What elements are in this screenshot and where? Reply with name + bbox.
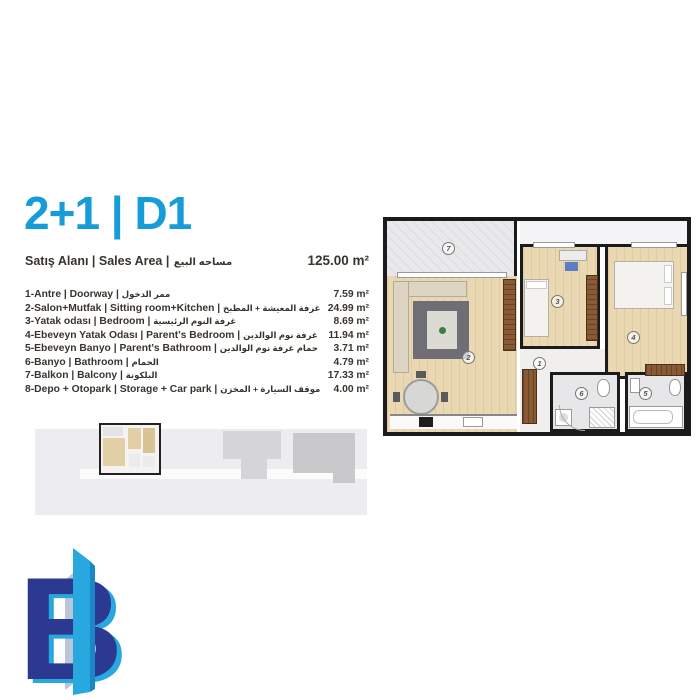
building-footprint [223, 431, 281, 459]
room-label-latin: 4-Ebeveyn Yatak Odası | Parent's Bedroom… [25, 330, 240, 341]
sales-area-row: Satış Alanı | Sales Area | مساحه البيع 1… [25, 252, 369, 270]
room-label-latin: 8-Depo + Otopark | Storage + Car park | [25, 384, 217, 395]
room-label-arabic: موقف السيارة + المخزن [220, 384, 320, 394]
building-footprint [293, 433, 355, 473]
unit-title: 2+1 | D1 [24, 190, 191, 236]
room-area: 4.79 m² [334, 357, 370, 368]
logo-tower-edge [90, 561, 95, 692]
room-row-salon: 2-Salon+Mutfak | Sitting room+Kitchen | … [25, 303, 369, 317]
room-label-latin: 7-Balkon | Balcony | [25, 370, 123, 381]
sales-area-label: Satış Alanı | Sales Area | [25, 254, 169, 268]
room-label-latin: 5-Ebeveyn Banyo | Parent's Bathroom | [25, 343, 217, 354]
room-area: 7.59 m² [334, 289, 370, 300]
room-label-latin: 3-Yatak odası | Bedroom | [25, 316, 150, 327]
mini-bathroom [129, 454, 140, 467]
mini-bathroom [143, 456, 155, 467]
room-label-arabic: غرفة النوم الرئيسية [153, 316, 236, 326]
room-label-arabic: ممر الدخول [122, 289, 170, 299]
room-row-balkon: 7-Balkon | Balcony | البلكونة 17.33 m² [25, 370, 369, 384]
mini-balcony [103, 427, 123, 436]
room-label: 5-Ebeveyn Banyo | Parent's Bathroom | حم… [25, 343, 318, 354]
mini-bedroom [128, 428, 141, 449]
floor-plan-outer-wall [383, 217, 691, 436]
room-label: 2-Salon+Mutfak | Sitting room+Kitchen | … [25, 303, 320, 314]
sales-area-label-group: Satış Alanı | Sales Area | مساحه البيع [25, 252, 232, 270]
room-label-latin: 6-Banyo | Bathroom | [25, 357, 129, 368]
room-area: 3.71 m² [334, 343, 370, 354]
room-row-yatak: 3-Yatak odası | Bedroom | غرفة النوم الر… [25, 316, 369, 330]
room-area: 8.69 m² [334, 316, 370, 327]
room-list: 1-Antre | Doorway | ممر الدخول 7.59 m² 2… [25, 289, 369, 397]
site-plan-unit-marker [99, 423, 161, 475]
room-label-latin: 1-Antre | Doorway | [25, 289, 119, 300]
room-label-arabic: حمام غرفة نوم الوالدين [220, 343, 318, 353]
mini-parent-bedroom [143, 428, 155, 453]
room-label: 7-Balkon | Balcony | البلكونة [25, 370, 157, 381]
sales-area-value: 125.00 m² [307, 253, 369, 268]
room-row-ebeveyn-yatak: 4-Ebeveyn Yatak Odası | Parent's Bedroom… [25, 330, 369, 344]
room-area: 24.99 m² [328, 303, 369, 314]
floor-plan: 7 2 3 4 1 6 5 [383, 217, 691, 436]
room-label: 6-Banyo | Bathroom | الحمام [25, 357, 159, 368]
room-label-arabic: البلكونة [126, 370, 158, 380]
room-label-arabic: الحمام [131, 357, 158, 367]
mini-living [103, 438, 125, 466]
sales-area-label-arabic: مساحه البيع [174, 257, 232, 268]
room-label: 3-Yatak odası | Bedroom | غرفة النوم الر… [25, 316, 236, 327]
room-row-antre: 1-Antre | Doorway | ممر الدخول 7.59 m² [25, 289, 369, 303]
building-footprint [333, 471, 355, 483]
room-row-banyo: 6-Banyo | Bathroom | الحمام 4.79 m² [25, 357, 369, 371]
room-area: 17.33 m² [328, 370, 369, 381]
logo-letter: B [18, 547, 123, 697]
room-label-arabic: غرفة نوم الوالدين [243, 330, 318, 340]
room-area: 11.94 m² [328, 330, 369, 341]
room-area: 4.00 m² [334, 384, 370, 395]
room-label-arabic: غرفة المعيشة + المطبخ [223, 303, 320, 313]
room-label: 1-Antre | Doorway | ممر الدخول [25, 289, 170, 300]
site-key-plan [35, 423, 367, 518]
company-logo: B B [15, 542, 140, 697]
brochure-page: 2+1 | D1 Satış Alanı | Sales Area | مساح… [0, 0, 700, 700]
room-row-ebeveyn-banyo: 5-Ebeveyn Banyo | Parent's Bathroom | حم… [25, 343, 369, 357]
building-footprint [241, 457, 267, 479]
logo-tower-icon [73, 548, 90, 695]
room-label: 4-Ebeveyn Yatak Odası | Parent's Bedroom… [25, 330, 318, 341]
room-label: 8-Depo + Otopark | Storage + Car park | … [25, 384, 320, 395]
room-label-latin: 2-Salon+Mutfak | Sitting room+Kitchen | [25, 303, 220, 314]
room-row-depo: 8-Depo + Otopark | Storage + Car park | … [25, 384, 369, 398]
logo-graphic: B B [15, 542, 140, 697]
